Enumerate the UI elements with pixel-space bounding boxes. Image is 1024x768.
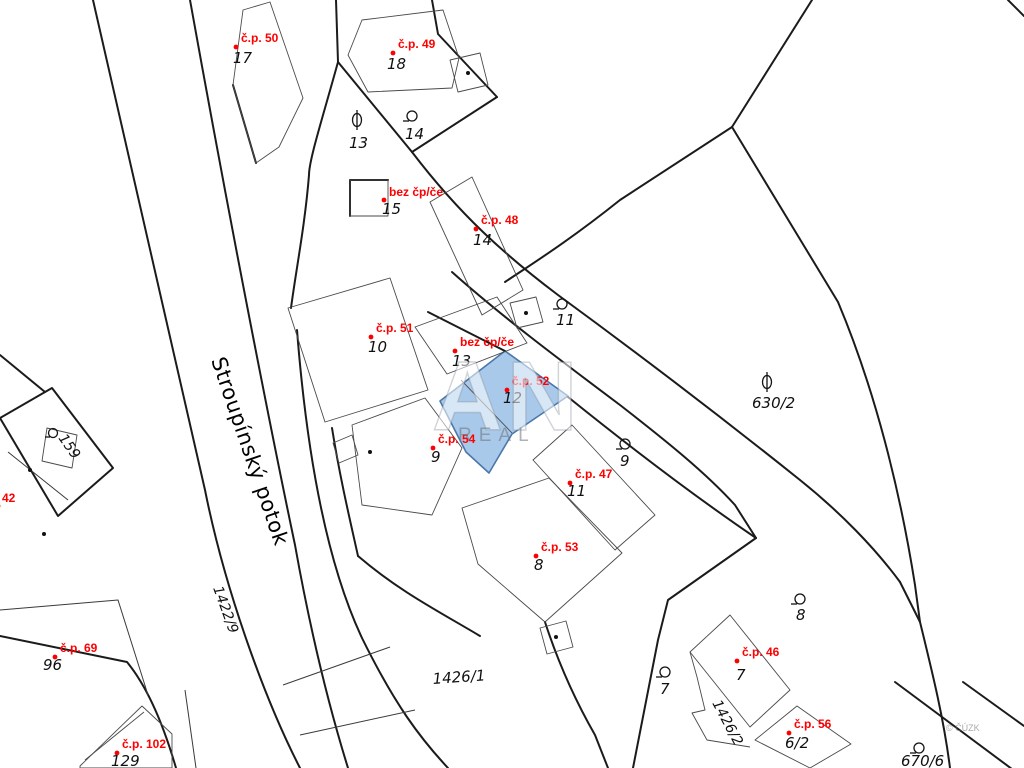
orchard-icon — [763, 372, 772, 392]
parcel-number: 9 — [620, 452, 630, 470]
house-label-cp-47: č.p. 47 11 — [567, 467, 613, 500]
house-label-text: č.p. 49 — [398, 37, 436, 51]
house-label-cp-42: 42 — [0, 491, 16, 508]
house-label-cp-53: č.p. 53 8 — [534, 540, 579, 574]
watermark-sub-text: REAL — [458, 425, 536, 446]
house-label-text: č.p. 69 — [60, 641, 98, 655]
building-number: 18 — [387, 55, 406, 73]
parcel-13: 13 — [349, 110, 368, 152]
building-circle-icon — [656, 667, 670, 677]
house-label-text: č.p. 48 — [481, 213, 519, 227]
parcel-number: 13 — [349, 134, 368, 152]
house-label-text: 42 — [2, 491, 16, 505]
building-number: 14 — [473, 231, 492, 249]
parcel-14: 14 — [403, 111, 424, 143]
parcel-159: 159 — [45, 429, 83, 463]
parcel-number: 670/6 — [901, 752, 944, 768]
building-number: 10 — [368, 338, 387, 356]
house-label-text: č.p. 50 — [241, 31, 279, 45]
parcel-number: 14 — [405, 125, 424, 143]
house-label-text: č.p. 102 — [122, 737, 166, 751]
parcel-number: 159 — [55, 431, 83, 462]
label-dot — [735, 659, 740, 664]
watermark: AN REAL © ČÚZK — [432, 341, 980, 733]
parcel-11: 11 — [553, 299, 575, 329]
parcel-630-2: 630/2 — [752, 372, 795, 412]
house-label-text: č.p. 56 — [794, 717, 832, 731]
building-number: 6/2 — [785, 734, 809, 752]
building-number: 7 — [736, 666, 746, 684]
house-label-text: č.p. 47 — [575, 467, 613, 481]
building-number: 96 — [43, 656, 62, 674]
house-label-text: č.p. 51 — [376, 321, 414, 335]
building-number: 8 — [534, 556, 544, 574]
building-circle-icon — [553, 299, 567, 309]
parcel-8: 8 — [791, 594, 806, 624]
parcel-number: 7 — [660, 680, 670, 698]
house-label-cp-102: č.p. 102 129 — [111, 737, 166, 768]
cadastral-map[interactable]: č.p. 50 17 č.p. 49 18 bez čp/če 15 č.p. … — [0, 0, 1024, 768]
parcel-number: 8 — [796, 606, 806, 624]
orchard-icon — [353, 110, 362, 130]
house-label-text: bez čp/če — [389, 185, 443, 199]
house-label-cp-56: č.p. 56 6/2 — [785, 717, 832, 752]
building-circle-icon — [791, 594, 805, 604]
area-label-1426-1: 1426/1 — [432, 666, 486, 688]
house-label-text: č.p. 46 — [742, 645, 780, 659]
house-label-cp-46: č.p. 46 7 — [735, 645, 780, 684]
stream-label: Stroupínský potok — [206, 354, 293, 549]
parcel-7: 7 — [656, 667, 670, 698]
parcel-number: 630/2 — [752, 394, 795, 412]
parcel-number: 11 — [556, 311, 575, 329]
building-number: 129 — [111, 752, 140, 768]
building-circle-icon — [403, 111, 417, 121]
building-number: 11 — [567, 482, 586, 500]
house-label-cp-49: č.p. 49 18 — [387, 37, 436, 73]
building-number: 15 — [382, 200, 401, 218]
house-label-text: č.p. 53 — [541, 540, 579, 554]
parcel-670-6: 670/6 — [901, 743, 944, 768]
copyright-watermark: © ČÚZK — [946, 723, 980, 733]
house-label-cp-51: č.p. 51 10 — [368, 321, 414, 356]
building-number: 17 — [233, 49, 253, 67]
house-label-bez-15: bez čp/če 15 — [382, 185, 444, 218]
